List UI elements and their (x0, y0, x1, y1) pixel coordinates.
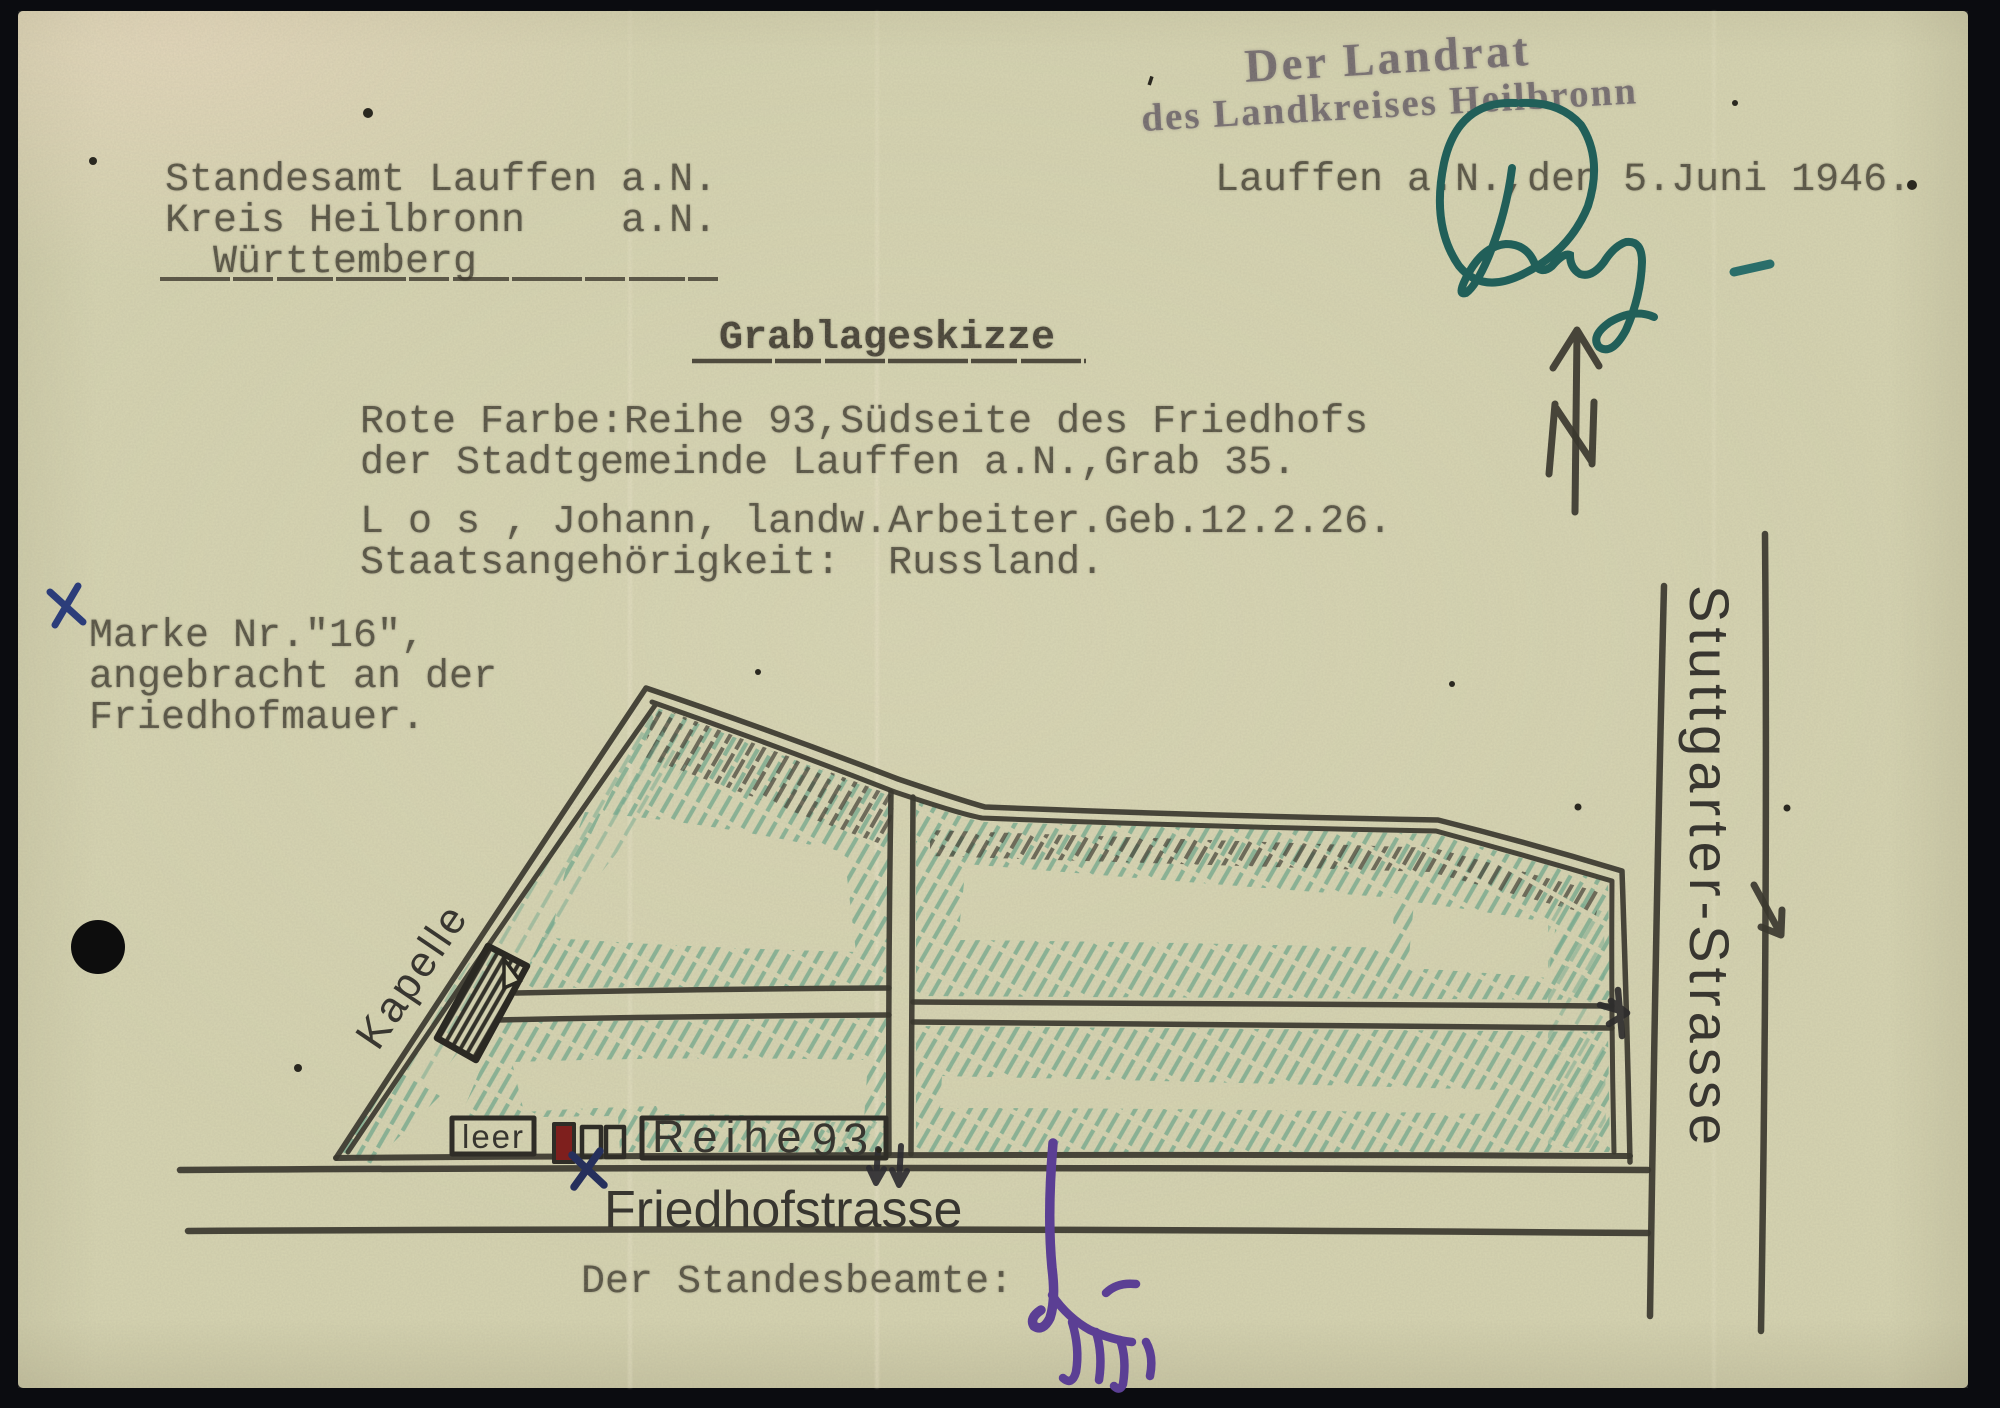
svg-text:93: 93 (812, 1114, 874, 1165)
svg-text:Stuttgarter-Strasse: Stuttgarter-Strasse (1678, 585, 1741, 1150)
svg-text:leer: leer (462, 1118, 525, 1155)
svg-text:Reihe: Reihe (652, 1111, 810, 1162)
svg-text:Friedhofstrasse: Friedhofstrasse (604, 1181, 962, 1239)
